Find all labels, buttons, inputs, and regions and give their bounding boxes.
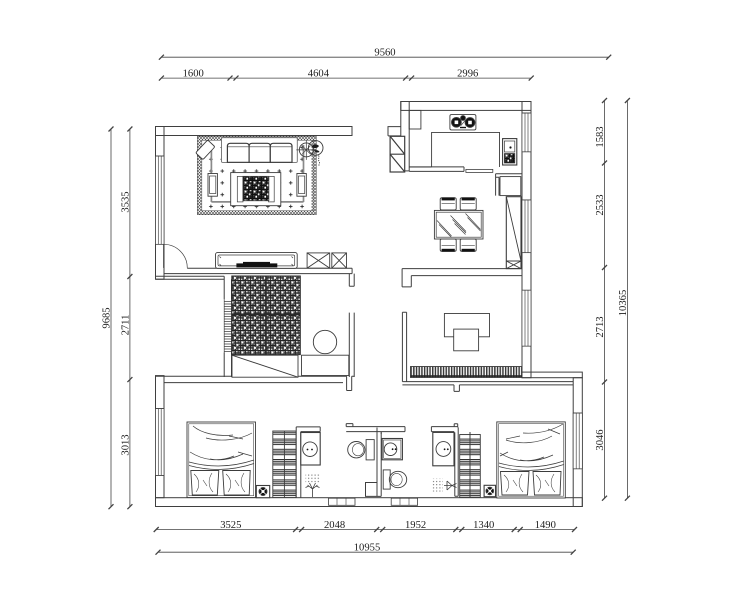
svg-text:2711: 2711 bbox=[120, 315, 131, 336]
svg-text:2048: 2048 bbox=[324, 520, 345, 531]
svg-text:3046: 3046 bbox=[595, 429, 606, 450]
svg-text:1583: 1583 bbox=[595, 126, 606, 147]
svg-text:1340: 1340 bbox=[473, 520, 494, 531]
svg-text:1490: 1490 bbox=[535, 520, 556, 531]
svg-text:3013: 3013 bbox=[120, 434, 131, 455]
svg-text:3525: 3525 bbox=[220, 520, 241, 531]
svg-text:9560: 9560 bbox=[374, 48, 395, 59]
svg-text:9685: 9685 bbox=[101, 307, 112, 328]
svg-text:10955: 10955 bbox=[354, 543, 380, 554]
svg-text:4604: 4604 bbox=[308, 69, 330, 80]
svg-text:2713: 2713 bbox=[595, 316, 606, 337]
svg-text:10365: 10365 bbox=[618, 290, 629, 316]
svg-text:2533: 2533 bbox=[595, 194, 606, 215]
svg-text:3535: 3535 bbox=[120, 191, 131, 212]
svg-text:1952: 1952 bbox=[405, 520, 426, 531]
svg-text:1600: 1600 bbox=[183, 69, 204, 80]
svg-text:2996: 2996 bbox=[457, 69, 478, 80]
